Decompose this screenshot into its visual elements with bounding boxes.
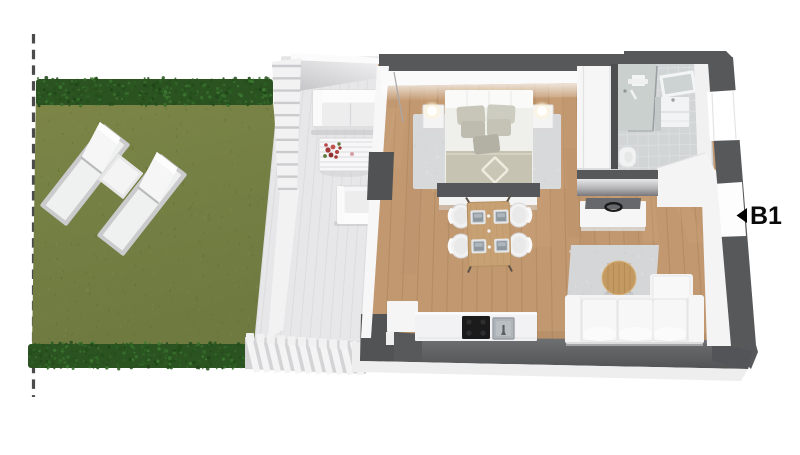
svg-text:B1: B1 [750,202,782,230]
